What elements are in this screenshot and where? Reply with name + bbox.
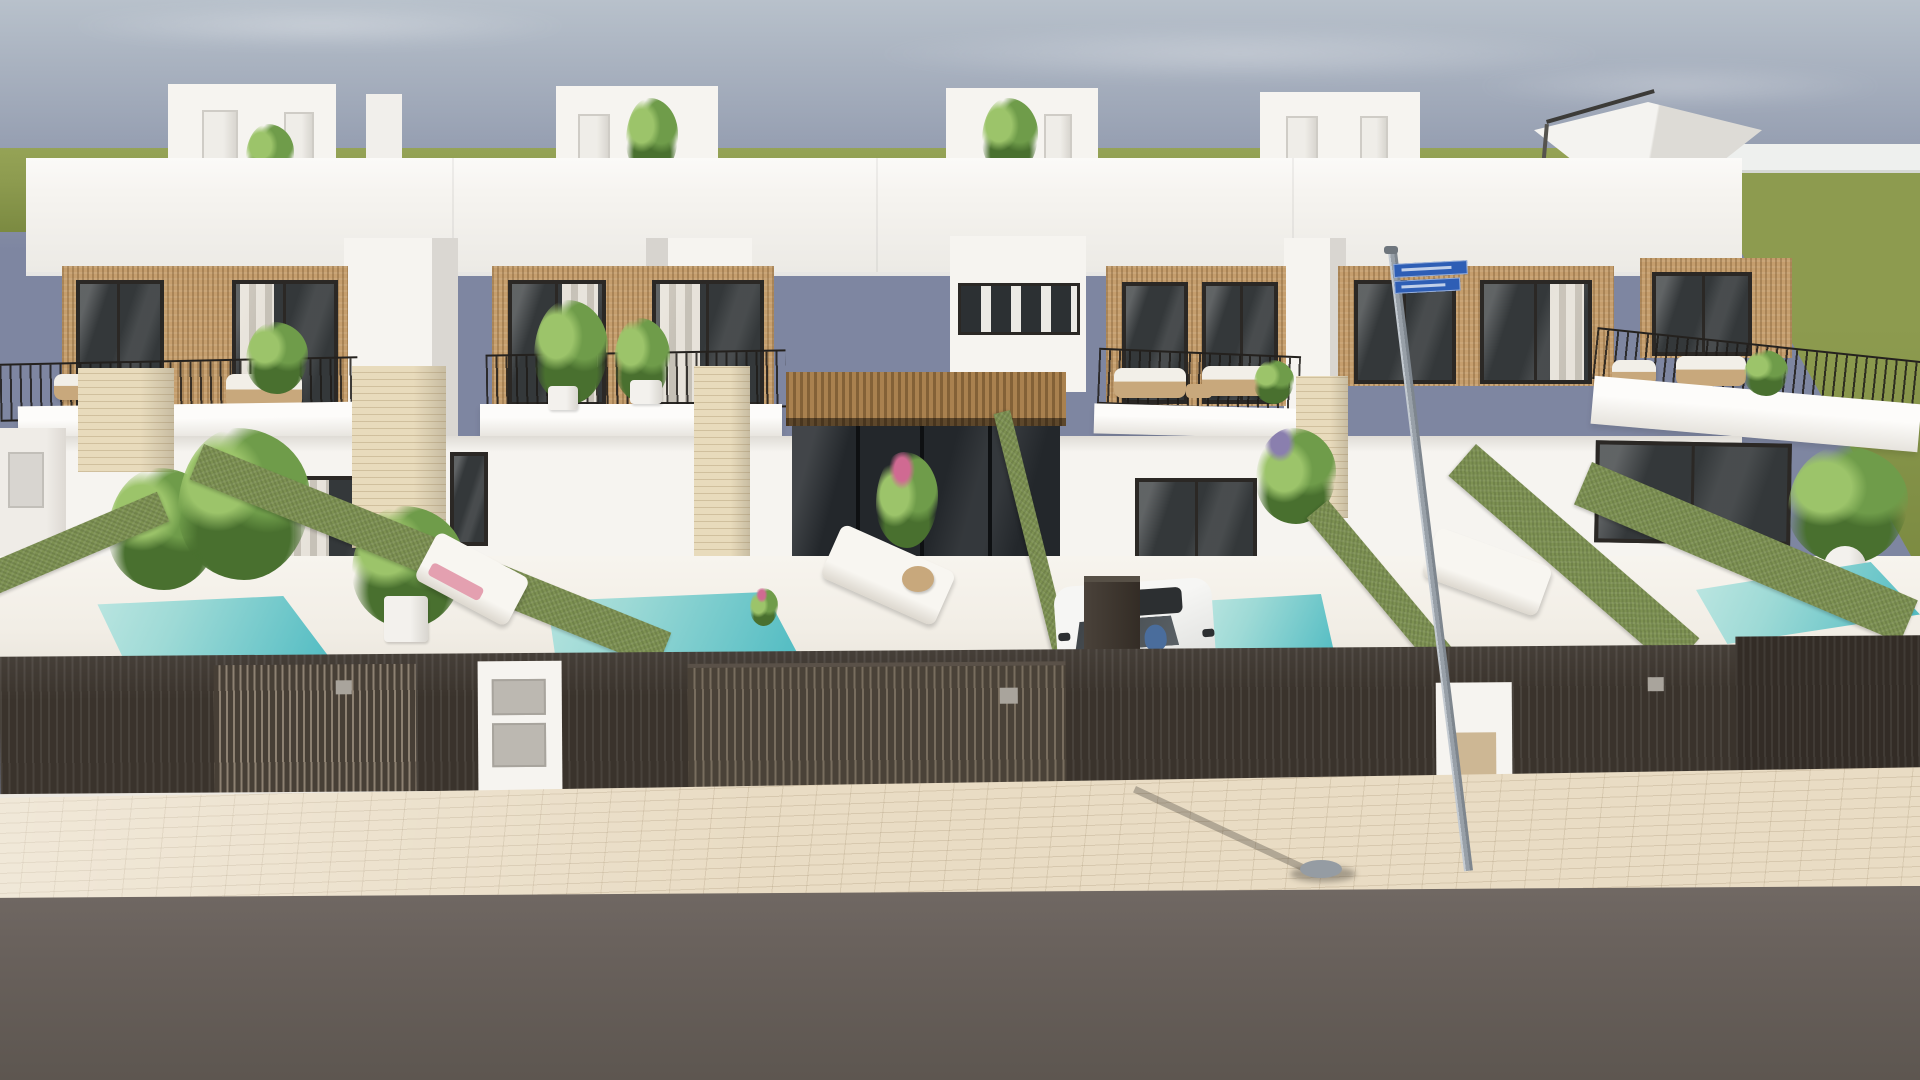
fence-plate <box>1648 677 1664 691</box>
lamp-post-foot <box>1300 860 1342 878</box>
planter-pot <box>548 386 578 410</box>
street-sign <box>1393 260 1469 296</box>
balcony-slab-3 <box>1094 403 1299 438</box>
sign-plate <box>1393 260 1468 278</box>
mailbox-unit-1 <box>478 661 563 800</box>
upper-cladding-band-4 <box>1338 266 1614 386</box>
outdoor-sofa <box>1676 356 1746 386</box>
fence-plate <box>1000 688 1018 704</box>
meter-panel <box>492 723 546 767</box>
parapet-step-line <box>876 158 878 272</box>
cloud <box>1470 64 1890 108</box>
fence-gate-1 <box>214 664 417 797</box>
car-mirror <box>1058 633 1071 642</box>
fence-right-section <box>1735 635 1920 776</box>
stone-pillar-3 <box>694 366 750 578</box>
sign-text-line <box>1401 266 1451 272</box>
coffee-table <box>1186 384 1212 398</box>
stone-pillar-1 <box>78 368 174 472</box>
cloud <box>60 4 580 48</box>
clerestory-window-band <box>958 283 1080 335</box>
car-mirror <box>1202 628 1215 637</box>
render-scene <box>0 0 1920 1080</box>
roof-parapet <box>26 158 1742 276</box>
meter-panel <box>492 679 546 715</box>
window-upper <box>1480 280 1592 384</box>
window-small <box>450 452 488 546</box>
utility-panel <box>8 452 44 508</box>
vehicle-gate <box>688 661 1067 792</box>
road <box>0 882 1920 1080</box>
fence-plate <box>336 680 352 694</box>
lamp-post-cap <box>1384 246 1398 254</box>
entrance-canopy <box>786 372 1066 426</box>
side-table <box>902 566 934 592</box>
sign-text-line <box>1401 283 1445 288</box>
boundary-wall-distant <box>1724 144 1920 173</box>
outdoor-sofa <box>1114 368 1186 398</box>
planter-pot <box>384 596 428 642</box>
sign-plate <box>1394 277 1461 293</box>
facade-column <box>950 236 1086 392</box>
planter-pot <box>630 380 662 404</box>
